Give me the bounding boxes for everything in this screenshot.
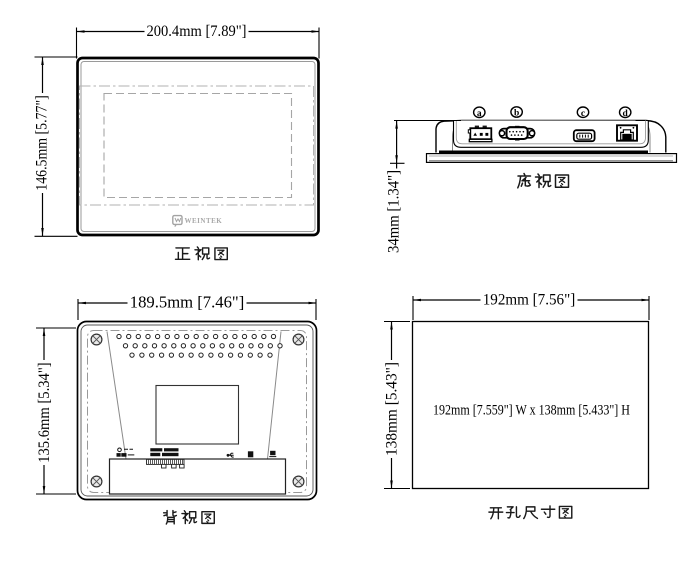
svg-text:b: b (514, 109, 519, 119)
svg-text:146.5mm [5.77"]: 146.5mm [5.77"] (34, 95, 51, 191)
svg-text:200.4mm [7.89"]: 200.4mm [7.89"] (147, 23, 247, 40)
svg-text:192mm [7.56"]: 192mm [7.56"] (483, 292, 576, 309)
svg-text:c: c (581, 109, 585, 119)
svg-text:WEINTEK: WEINTEK (185, 217, 223, 225)
svg-text:d: d (623, 109, 629, 119)
svg-text:192mm [7.559"] W x 138mm [5.43: 192mm [7.559"] W x 138mm [5.433"] H (433, 403, 630, 419)
svg-text:135.6mm [5.34"]: 135.6mm [5.34"] (36, 362, 53, 463)
svg-text:34mm [1.34"]: 34mm [1.34"] (386, 170, 403, 253)
svg-text:138mm [5.43"]: 138mm [5.43"] (384, 362, 401, 456)
svg-text:189.5mm [7.46"]: 189.5mm [7.46"] (130, 293, 245, 312)
svg-text:a: a (477, 109, 482, 119)
